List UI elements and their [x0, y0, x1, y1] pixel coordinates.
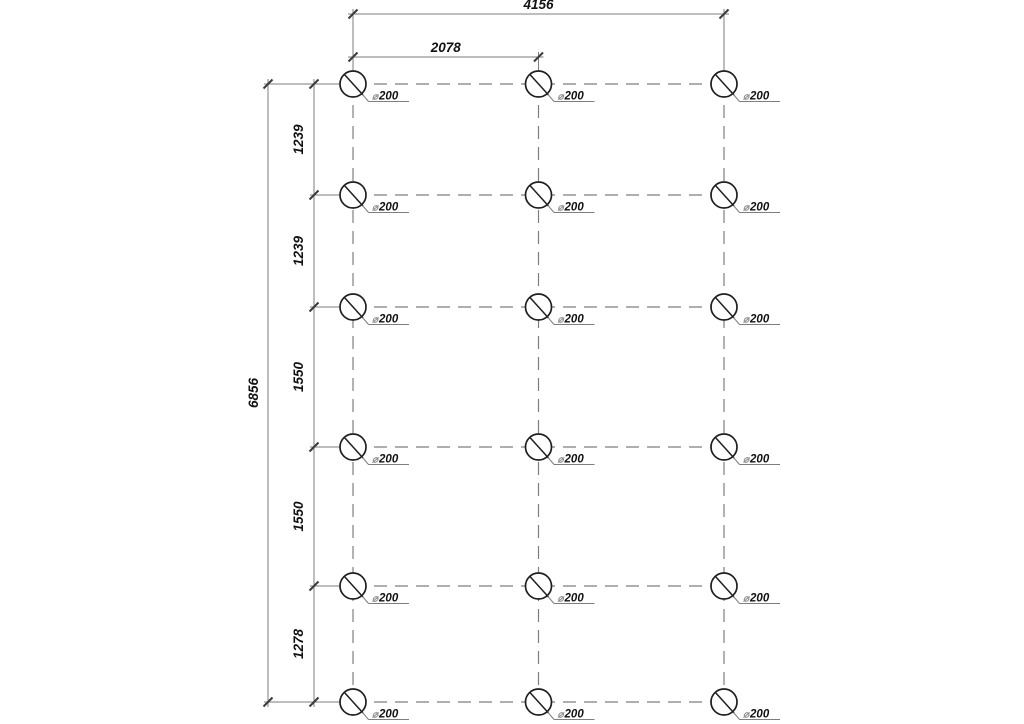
diameter-value: 200	[564, 314, 585, 326]
drawing-canvas: ⌀200⌀200⌀200⌀200⌀200⌀200⌀200⌀200⌀200⌀200…	[0, 0, 1024, 724]
pile-diameter-label: ⌀200	[372, 202, 399, 214]
pile-leader-line	[363, 713, 369, 720]
pile-leader-line	[363, 597, 369, 604]
diameter-value: 200	[564, 454, 585, 466]
dim-text-total-width: 4156	[522, 0, 554, 12]
diameter-value: 200	[378, 454, 399, 466]
pile-diameter-label: ⌀200	[743, 202, 770, 214]
pile-leader-line	[548, 95, 554, 102]
pile-leader-line	[734, 713, 740, 720]
pile-leader-line	[363, 206, 369, 213]
pile-leader-line	[363, 318, 369, 325]
extension-lines	[264, 9, 724, 702]
diameter-value: 200	[378, 593, 399, 605]
diameter-value: 200	[749, 91, 770, 103]
pile-diameter-label: ⌀200	[743, 593, 770, 605]
pile-diameter-label: ⌀200	[743, 91, 770, 103]
pile-diameter-label: ⌀200	[372, 454, 399, 466]
diameter-value: 200	[564, 709, 585, 721]
pile-diameter-label: ⌀200	[558, 709, 585, 721]
dimension-texts: 41562078685612391239155015501278	[246, 0, 554, 659]
pile-leader-line	[548, 713, 554, 720]
pile-leader-line	[363, 458, 369, 465]
centerline-grid	[353, 84, 724, 702]
diameter-value: 200	[378, 202, 399, 214]
pile-diameter-label: ⌀200	[743, 454, 770, 466]
dimension-ticks	[264, 10, 729, 707]
dim-text-segment: 1550	[291, 361, 306, 392]
dim-text-segment: 1239	[291, 235, 306, 266]
pile-diameter-label: ⌀200	[558, 593, 585, 605]
diameter-value: 200	[564, 202, 585, 214]
diameter-value: 200	[749, 454, 770, 466]
diameter-value: 200	[564, 593, 585, 605]
dim-text-segment: 1550	[291, 501, 306, 532]
pile-leaders: ⌀200⌀200⌀200⌀200⌀200⌀200⌀200⌀200⌀200⌀200…	[344, 74, 780, 721]
diameter-value: 200	[378, 314, 399, 326]
dim-text-first-bay: 2078	[430, 40, 462, 55]
pile-leader-line	[548, 206, 554, 213]
pile-leader-line	[734, 458, 740, 465]
pile-leader-line	[734, 206, 740, 213]
pile-diameter-label: ⌀200	[743, 709, 770, 721]
dim-text-segment: 1278	[291, 628, 306, 659]
pile-diameter-label: ⌀200	[372, 91, 399, 103]
pile-leader-line	[548, 597, 554, 604]
pile-diameter-label: ⌀200	[558, 314, 585, 326]
diameter-value: 200	[564, 91, 585, 103]
diameter-value: 200	[749, 202, 770, 214]
dim-text-segment: 1239	[291, 124, 306, 155]
dim-text-total-height: 6856	[246, 377, 261, 408]
pile-leader-line	[734, 318, 740, 325]
diameter-value: 200	[378, 709, 399, 721]
dimension-lines	[268, 14, 729, 707]
diameter-value: 200	[378, 91, 399, 103]
pile-layout-plan: ⌀200⌀200⌀200⌀200⌀200⌀200⌀200⌀200⌀200⌀200…	[0, 0, 1024, 724]
pile-diameter-label: ⌀200	[743, 314, 770, 326]
pile-diameter-label: ⌀200	[558, 454, 585, 466]
pile-leader-line	[548, 318, 554, 325]
pile-diameter-label: ⌀200	[372, 709, 399, 721]
pile-leader-line	[734, 597, 740, 604]
pile-leader-line	[548, 458, 554, 465]
pile-diameter-label: ⌀200	[558, 202, 585, 214]
diameter-value: 200	[749, 709, 770, 721]
diameter-value: 200	[749, 593, 770, 605]
pile-diameter-label: ⌀200	[372, 593, 399, 605]
diameter-value: 200	[749, 314, 770, 326]
pile-leader-line	[734, 95, 740, 102]
pile-diameter-label: ⌀200	[372, 314, 399, 326]
pile-leader-line	[363, 95, 369, 102]
pile-diameter-label: ⌀200	[558, 91, 585, 103]
